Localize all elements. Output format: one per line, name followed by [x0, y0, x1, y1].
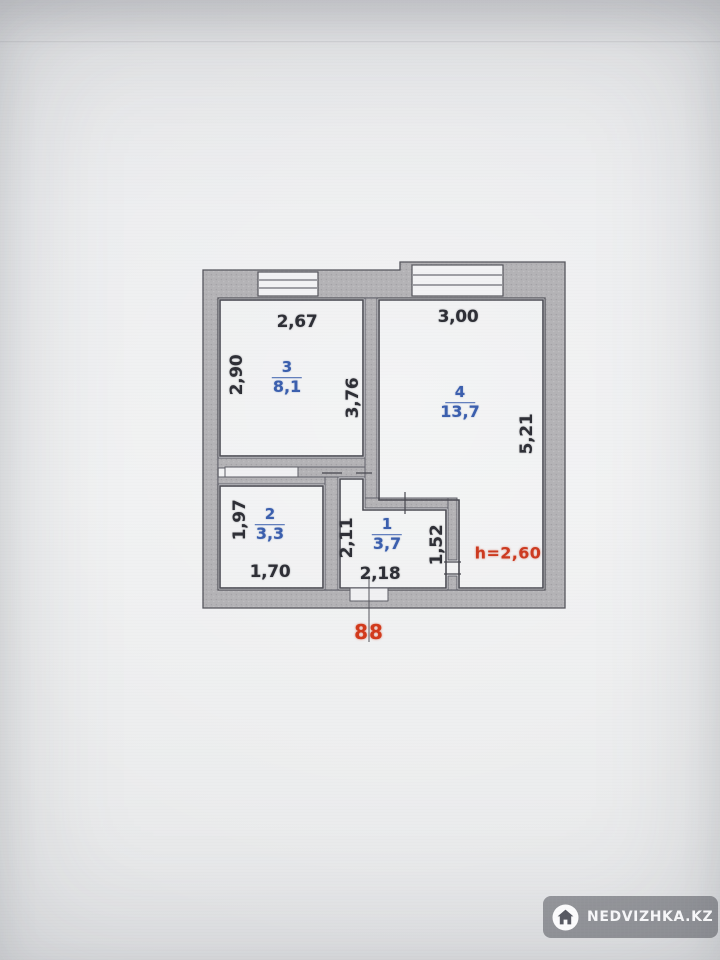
room-label-4: 4 13,7 — [440, 385, 479, 421]
dimension-bottom-left: 1,70 — [250, 562, 291, 582]
dimension-hall-right: 1,52 — [427, 525, 447, 566]
room-4-area: 13,7 — [440, 403, 479, 421]
dimension-hall-left: 2,11 — [337, 518, 357, 559]
window-right-icon — [412, 265, 503, 296]
dimension-bottom-center: 2,18 — [360, 564, 401, 584]
unit-number: 88 — [354, 620, 384, 644]
floorplan-drawing — [200, 258, 568, 650]
dimension-top-right: 3,00 — [438, 307, 479, 327]
room-label-3: 3 8,1 — [272, 360, 302, 396]
room-1-area: 3,7 — [373, 535, 401, 553]
room-2-number: 2 — [255, 507, 285, 525]
dimension-top-left: 2,67 — [277, 312, 318, 332]
room-1-number: 1 — [372, 517, 402, 535]
house-icon — [552, 904, 579, 931]
room-label-2: 2 3,3 — [255, 507, 285, 543]
watermark-text: NEDVIZHKA.KZ — [587, 909, 713, 925]
dimension-left-lower: 1,97 — [230, 500, 250, 541]
paper-crease — [0, 41, 720, 43]
dimension-center-vertical: 3,76 — [343, 378, 363, 419]
floorplan: 2,67 3,00 1,70 2,18 2,90 3,76 5,21 1,97 … — [200, 258, 568, 650]
wall-niche — [225, 467, 298, 477]
window-left-icon — [258, 272, 318, 296]
ceiling-height-note: h=2,60 — [475, 544, 542, 563]
room-3-area: 8,1 — [273, 378, 301, 396]
dimension-left-upper: 2,90 — [227, 355, 247, 396]
room-4-number: 4 — [445, 385, 475, 403]
watermark-badge: NEDVIZHKA.KZ — [543, 896, 718, 938]
room-label-1: 1 3,7 — [372, 517, 402, 553]
room-3-number: 3 — [272, 360, 302, 378]
room-2-area: 3,3 — [256, 525, 284, 543]
dimension-right-side: 5,21 — [517, 414, 537, 455]
